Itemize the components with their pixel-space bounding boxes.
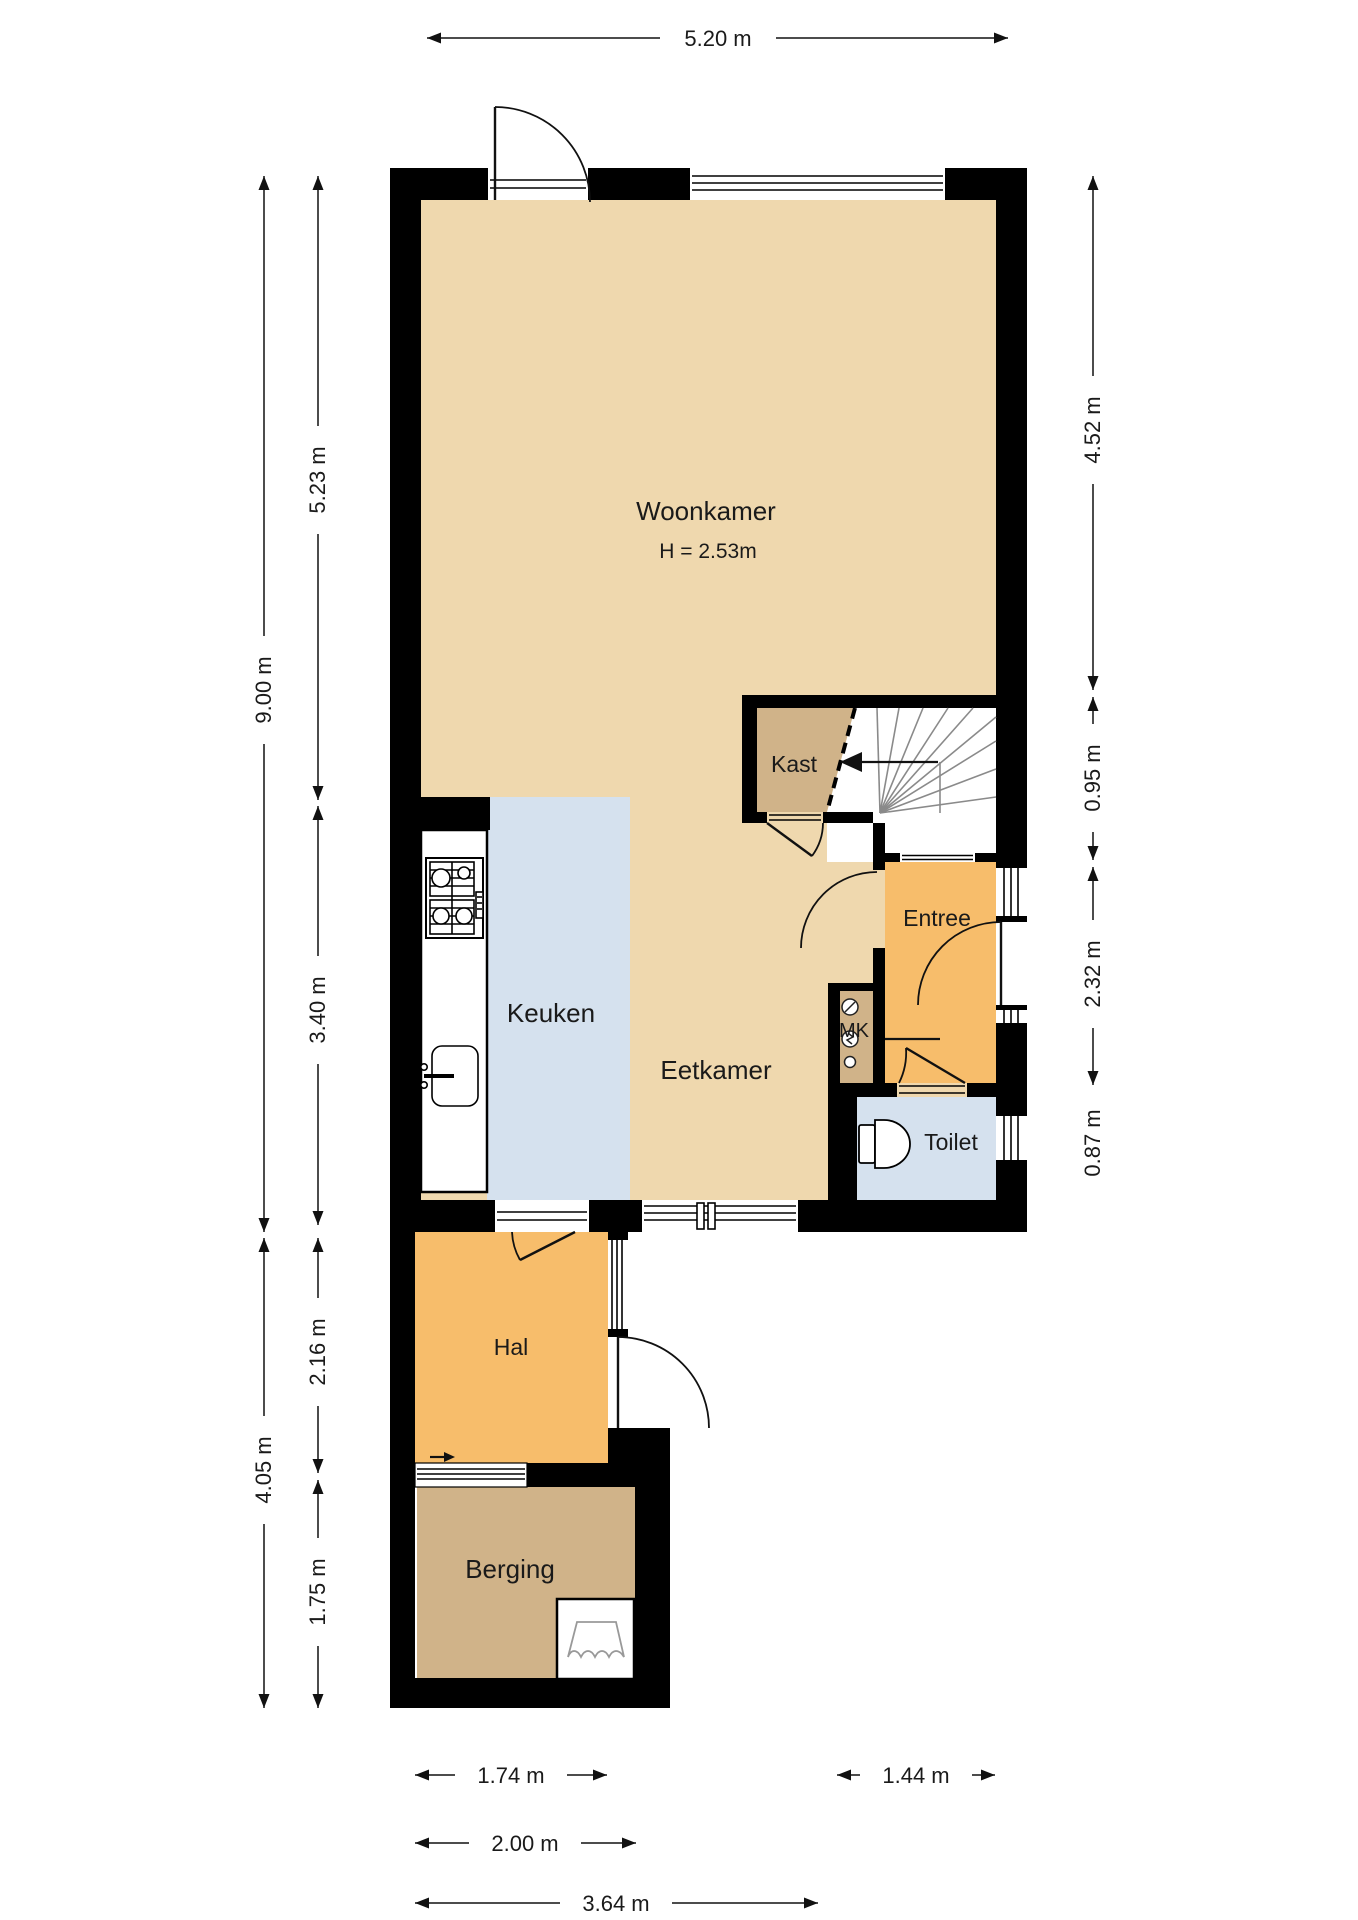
dim-berging-width: 1.74 m <box>477 1763 544 1788</box>
toilet-bowl-icon <box>859 1120 910 1168</box>
dim-hal-width: 2.00 m <box>491 1831 558 1856</box>
room-fills <box>415 200 996 1678</box>
dim-top-width: 5.20 m <box>684 26 751 51</box>
berging-label: Berging <box>465 1554 555 1584</box>
dim-keuken-height: 3.40 m <box>305 976 330 1043</box>
woonkamer-height-label: H = 2.53m <box>659 540 756 563</box>
dim-berging-height: 1.75 m <box>305 1558 330 1625</box>
woonkamer-label: Woonkamer <box>636 496 776 526</box>
dim-entree-height: 2.32 m <box>1080 940 1105 1007</box>
toilet-label: Toilet <box>924 1129 978 1155</box>
entree-floor <box>885 862 996 1083</box>
stairs-area <box>827 708 996 862</box>
keuken-label: Keuken <box>507 998 595 1028</box>
dim-lower-width: 3.64 m <box>582 1891 649 1916</box>
eetkamer-label: Eetkamer <box>660 1055 772 1085</box>
floorplan-drawing: Woonkamer H = 2.53m Keuken Eetkamer Kast… <box>0 0 1358 1920</box>
stove-icon <box>426 858 483 938</box>
kast-label: Kast <box>771 751 818 777</box>
entree-label: Entree <box>903 905 971 931</box>
hal-label: Hal <box>494 1334 529 1360</box>
dim-main-height: 9.00 m <box>251 656 276 723</box>
mk-label: MK <box>839 1020 870 1042</box>
dim-hal-height: 2.16 m <box>305 1318 330 1385</box>
dim-toilet-height: 0.87 m <box>1080 1109 1105 1176</box>
washing-machine-icon <box>557 1599 634 1679</box>
dim-toilet-width: 1.44 m <box>882 1763 949 1788</box>
dim-stairs-height: 0.95 m <box>1080 744 1105 811</box>
dim-right-upper: 4.52 m <box>1080 396 1105 463</box>
door-hal-exterior <box>618 1337 709 1428</box>
dim-woonkamer-height: 5.23 m <box>305 446 330 513</box>
floorplan-page: Woonkamer H = 2.53m Keuken Eetkamer Kast… <box>0 0 1358 1920</box>
kitchen-counter <box>421 830 487 1192</box>
dim-lower-total-height: 4.05 m <box>251 1436 276 1503</box>
